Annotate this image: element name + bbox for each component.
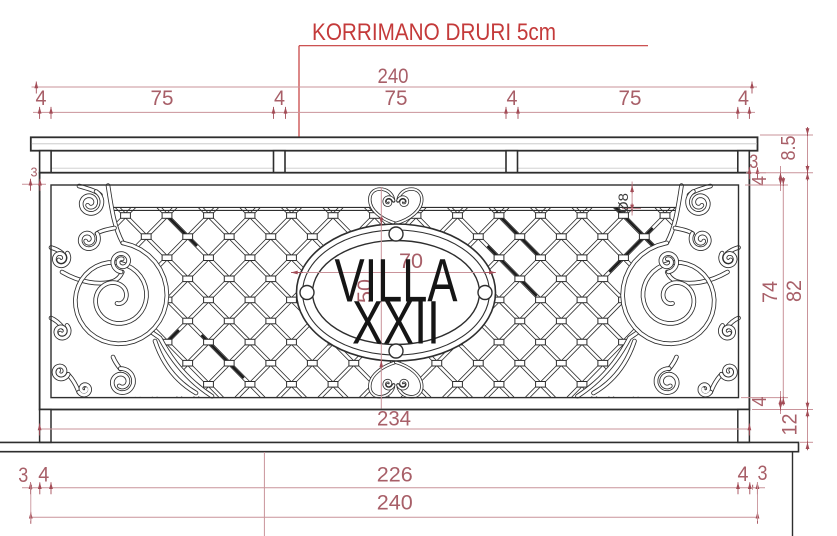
svg-text:75: 75 xyxy=(619,87,642,110)
svg-text:KORRIMANO DRURI 5cm: KORRIMANO DRURI 5cm xyxy=(312,19,556,46)
svg-text:,: , xyxy=(751,469,754,492)
svg-text:82: 82 xyxy=(783,280,806,302)
svg-text:226: 226 xyxy=(377,463,413,486)
svg-text:240: 240 xyxy=(377,492,413,515)
svg-text:4: 4 xyxy=(749,397,771,407)
svg-text:4: 4 xyxy=(38,464,49,487)
svg-text:XXII: XXII xyxy=(352,288,440,356)
svg-text:75: 75 xyxy=(151,87,174,110)
svg-text:4: 4 xyxy=(274,87,285,110)
svg-text:3: 3 xyxy=(749,152,758,173)
svg-text:4: 4 xyxy=(507,87,518,110)
svg-text:3: 3 xyxy=(31,165,38,180)
svg-text:240: 240 xyxy=(378,65,409,88)
svg-text:12: 12 xyxy=(779,414,802,436)
svg-text:8.5: 8.5 xyxy=(778,136,800,161)
svg-text:4: 4 xyxy=(36,87,47,110)
svg-text:4: 4 xyxy=(738,87,749,110)
svg-text:Ø8: Ø8 xyxy=(615,193,631,213)
svg-text:4: 4 xyxy=(738,463,749,486)
svg-text:74: 74 xyxy=(759,281,782,303)
svg-text:75: 75 xyxy=(385,87,408,110)
svg-text:234: 234 xyxy=(377,408,411,431)
svg-text:3: 3 xyxy=(758,462,768,485)
svg-text:3: 3 xyxy=(18,464,28,487)
